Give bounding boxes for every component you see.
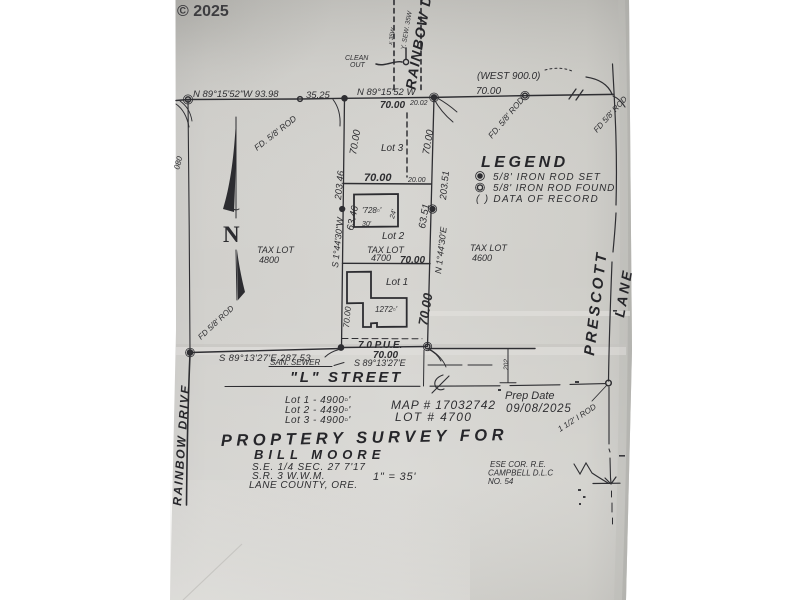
svg-text:70.00: 70.00 bbox=[380, 100, 405, 111]
svg-text:CLEAN: CLEAN bbox=[345, 55, 369, 62]
svg-text:Lot 3 - 4900▫': Lot 3 - 4900▫' bbox=[285, 415, 351, 426]
svg-text:70.00: 70.00 bbox=[476, 86, 501, 97]
svg-text:TAX LOT: TAX LOT bbox=[470, 243, 508, 253]
svg-text:4800: 4800 bbox=[259, 255, 279, 265]
svg-text:70.00: 70.00 bbox=[364, 172, 392, 184]
svg-text:TAX LOT: TAX LOT bbox=[257, 245, 295, 255]
svg-text:70.00: 70.00 bbox=[341, 306, 353, 328]
svg-text:© 2025: © 2025 bbox=[177, 3, 229, 20]
svg-text:202: 202 bbox=[503, 359, 510, 371]
svg-text:SAN. SEWER: SAN. SEWER bbox=[270, 358, 320, 367]
svg-text:30': 30' bbox=[362, 221, 372, 228]
svg-text:09/08/2025: 09/08/2025 bbox=[506, 403, 572, 415]
svg-text:70.00: 70.00 bbox=[400, 255, 425, 266]
svg-text:Lot 2: Lot 2 bbox=[382, 231, 405, 242]
svg-text:35.25: 35.25 bbox=[306, 90, 330, 101]
svg-text:'728▫': '728▫' bbox=[362, 206, 382, 215]
svg-text:LEGEND: LEGEND bbox=[481, 154, 569, 171]
svg-text:4700: 4700 bbox=[371, 253, 391, 263]
svg-text:LOT # 4700: LOT # 4700 bbox=[395, 410, 472, 424]
svg-text:( ) DATA OF RECORD: ( ) DATA OF RECORD bbox=[476, 194, 599, 205]
svg-text:20.00: 20.00 bbox=[407, 177, 426, 184]
svg-text:S 89°13'27'E: S 89°13'27'E bbox=[354, 358, 407, 368]
svg-text:Lot 3: Lot 3 bbox=[381, 143, 404, 154]
svg-text:20.02: 20.02 bbox=[409, 100, 428, 107]
svg-text:BILL MOORE: BILL MOORE bbox=[254, 447, 385, 462]
svg-text:"L" STREET: "L" STREET bbox=[290, 369, 403, 386]
svg-text:N 89°15'52"W 93.98: N 89°15'52"W 93.98 bbox=[193, 89, 279, 100]
svg-text:4600: 4600 bbox=[472, 253, 492, 263]
svg-text:Lot 1: Lot 1 bbox=[386, 277, 408, 288]
svg-text:1272▫': 1272▫' bbox=[375, 305, 398, 314]
svg-text:OUT: OUT bbox=[350, 62, 366, 69]
svg-text:LANE COUNTY, ORE.: LANE COUNTY, ORE. bbox=[249, 480, 358, 491]
svg-text:1" = 35': 1" = 35' bbox=[373, 471, 416, 483]
svg-text:(WEST 900.0): (WEST 900.0) bbox=[477, 71, 540, 82]
svg-text:N: N bbox=[223, 222, 240, 247]
svg-text:5/8' IRON ROD FOUND: 5/8' IRON ROD FOUND bbox=[493, 183, 615, 194]
svg-text:Prep Date: Prep Date bbox=[505, 390, 555, 402]
svg-text:NO. 54: NO. 54 bbox=[488, 477, 514, 486]
svg-text:5/8' IRON ROD SET: 5/8' IRON ROD SET bbox=[493, 172, 601, 183]
